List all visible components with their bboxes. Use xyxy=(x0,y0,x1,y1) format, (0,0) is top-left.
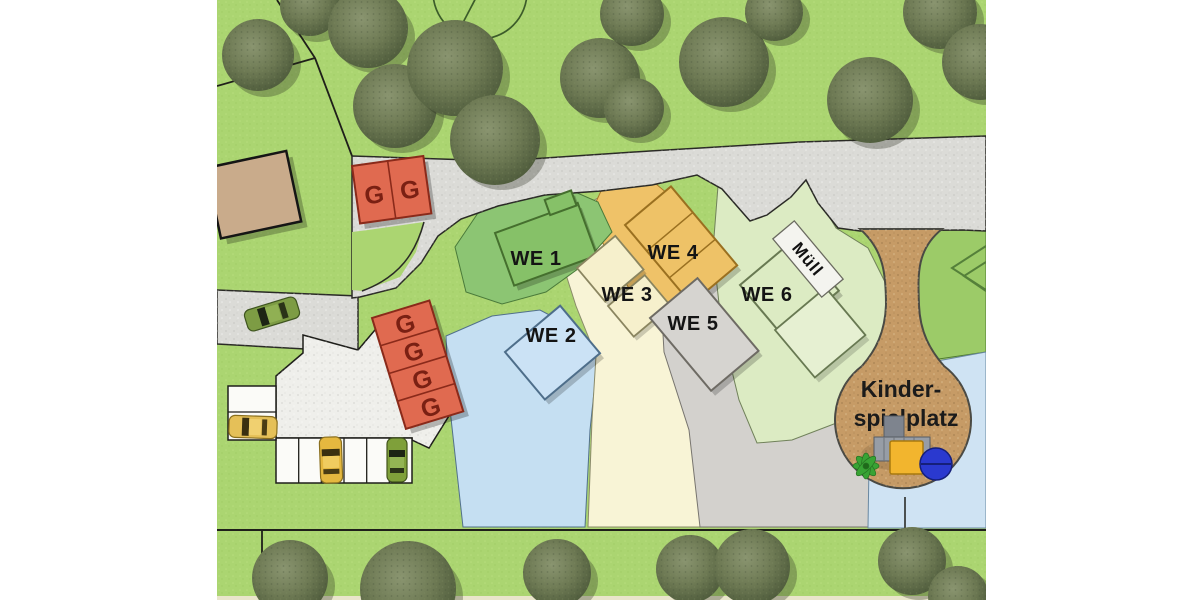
unit-we5-label: WE 5 xyxy=(668,313,719,335)
garage-label: G xyxy=(363,180,386,210)
unit-we4-label: WE 4 xyxy=(648,242,699,264)
sandbox-icon xyxy=(890,441,923,474)
unit-we1-label: WE 1 xyxy=(511,248,562,270)
pool-icon xyxy=(920,448,952,480)
playground-label-line2: spielplatz xyxy=(854,405,959,431)
site-plan-page: Müll G G G G G G WE 1 WE 2 WE 3 WE 4 xyxy=(0,0,1200,600)
carousel-icon xyxy=(853,453,879,479)
car-icon xyxy=(387,438,407,482)
garage-label: G xyxy=(398,175,421,205)
car-icon xyxy=(319,437,343,484)
garage-block-pair: G G xyxy=(352,155,436,229)
unit-we6-label: WE 6 xyxy=(742,284,793,306)
unit-we2-label: WE 2 xyxy=(526,325,577,347)
site-plan: Müll G G G G G G WE 1 WE 2 WE 3 WE 4 xyxy=(0,0,1200,600)
car-icon xyxy=(229,415,278,439)
playground-label-line1: Kinder- xyxy=(861,376,942,402)
unit-we3-label: WE 3 xyxy=(602,284,653,306)
